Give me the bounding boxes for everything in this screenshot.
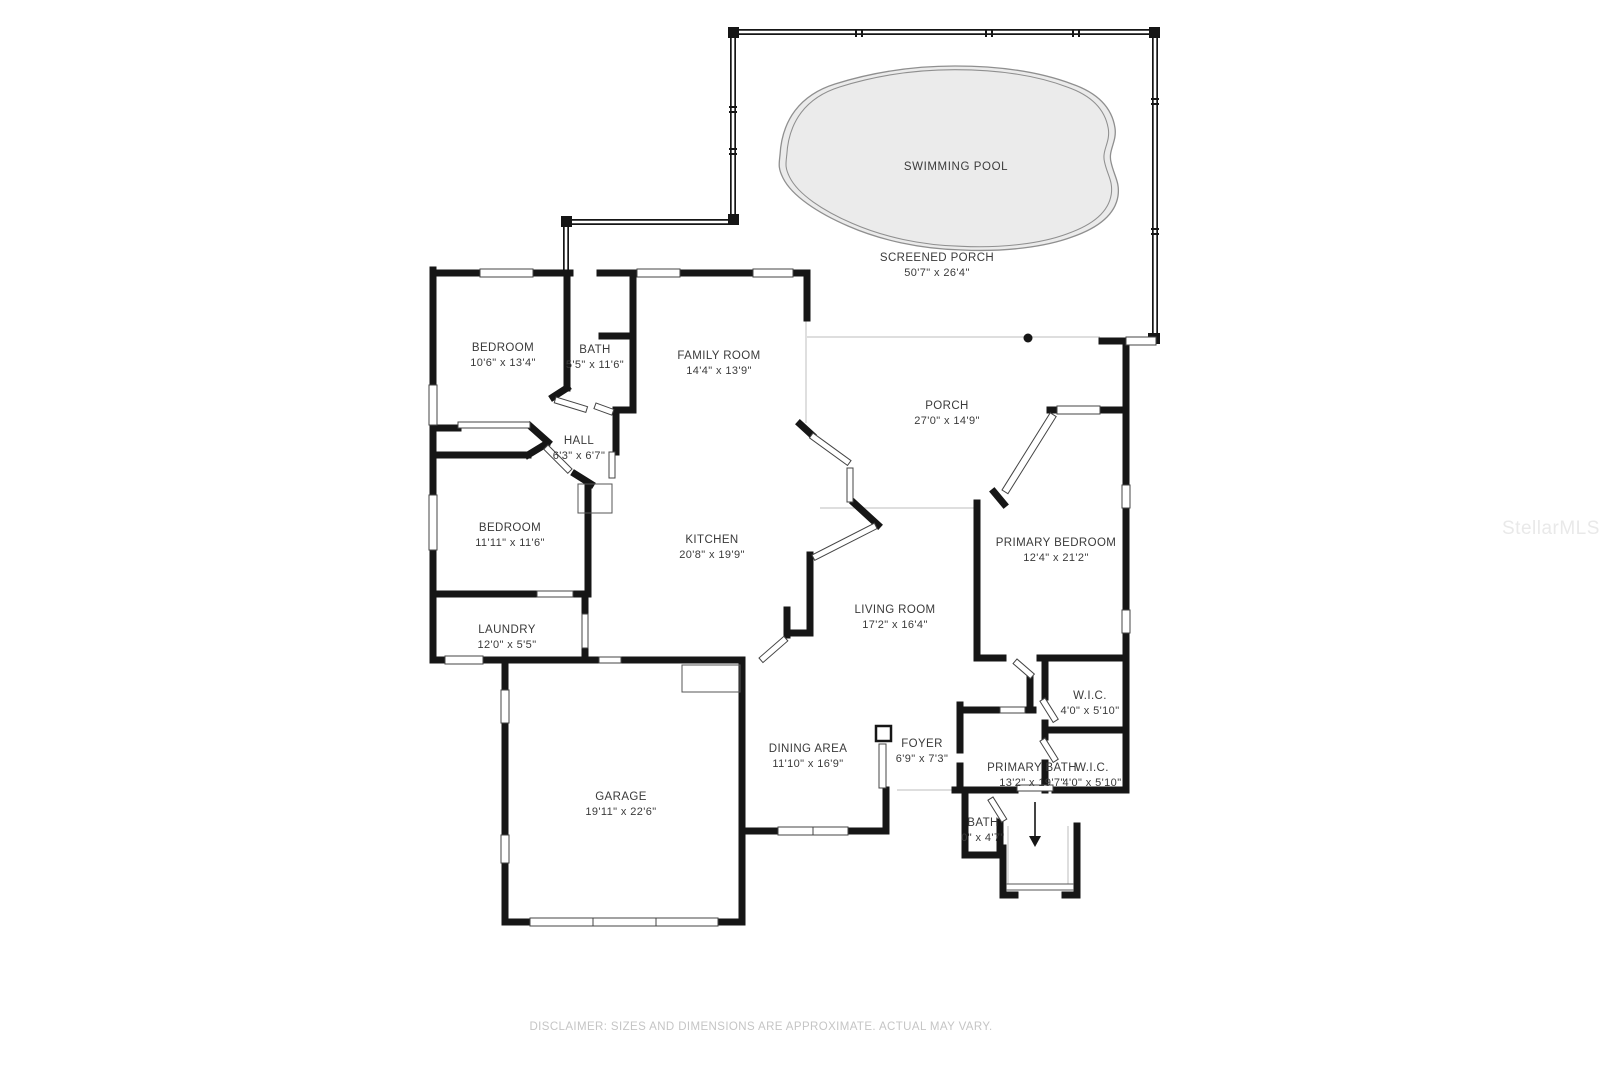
room-label-porch: PORCH 27'0" x 14'9"	[914, 400, 980, 428]
room-dims: 6'3" x 6'7"	[553, 450, 606, 463]
door-openings	[458, 397, 1058, 822]
room-name: BATH	[566, 344, 624, 357]
room-name: KITCHEN	[679, 534, 745, 547]
room-dims: 4'0" x 5'10"	[1060, 705, 1119, 718]
room-label-living-room: LIVING ROOM 17'2" x 16'4"	[854, 604, 935, 632]
room-dims: 10'6" x 13'4"	[470, 357, 536, 370]
room-dims: 12'4" x 21'2"	[996, 552, 1117, 565]
door-pivot-dot	[1024, 334, 1033, 343]
room-name: BEDROOM	[470, 342, 536, 355]
room-dims: 12'0" x 5'5"	[477, 639, 536, 652]
room-name: GARAGE	[585, 791, 656, 804]
room-dims: 0" x 4'7"	[961, 832, 1004, 845]
swimming-pool-shape	[779, 66, 1118, 250]
room-name: W.I.C.	[1062, 762, 1121, 775]
room-name: SWIMMING POOL	[904, 161, 1008, 174]
room-dims: 50'7" x 26'4"	[880, 267, 994, 280]
room-label-bath-1: BATH 5'5" x 11'6"	[566, 344, 624, 372]
floor-plan-drawing	[0, 0, 1600, 1066]
room-name: HALL	[553, 435, 606, 448]
room-label-primary-bedroom: PRIMARY BEDROOM 12'4" x 21'2"	[996, 537, 1117, 565]
floor-plan-page: SWIMMING POOL SCREENED PORCH 50'7" x 26'…	[0, 0, 1600, 1066]
room-dims: 11'11" x 11'6"	[475, 537, 545, 550]
room-dims: 14'4" x 13'9"	[677, 365, 760, 378]
stellar-mls-watermark: StellarMLS	[1502, 518, 1600, 540]
room-dims: 17'2" x 16'4"	[854, 619, 935, 632]
room-name: SCREENED PORCH	[880, 252, 994, 265]
room-label-bedroom-2: BEDROOM 11'11" x 11'6"	[475, 522, 545, 550]
room-name: LIVING ROOM	[854, 604, 935, 617]
room-label-dining-area: DINING AREA 11'10" x 16'9"	[769, 743, 848, 771]
room-name: PORCH	[914, 400, 980, 413]
room-dims: 19'11" x 22'6"	[585, 806, 656, 819]
foyer-column	[876, 726, 891, 741]
entry-porch	[1006, 802, 1074, 890]
garage-door	[530, 918, 718, 926]
room-name: FAMILY ROOM	[677, 350, 760, 363]
room-dims: 11'10" x 16'9"	[769, 758, 848, 771]
disclaimer-text: DISCLAIMER: SIZES AND DIMENSIONS ARE APP…	[529, 1021, 992, 1033]
room-name: PRIMARY BEDROOM	[996, 537, 1117, 550]
room-name: BATH	[961, 817, 1004, 830]
room-label-kitchen: KITCHEN 20'8" x 19'9"	[679, 534, 745, 562]
room-dims: 27'0" x 14'9"	[914, 415, 980, 428]
room-label-laundry: LAUNDRY 12'0" x 5'5"	[477, 624, 536, 652]
room-name: W.I.C.	[1060, 690, 1119, 703]
room-dims: 4'0" x 5'10"	[1062, 777, 1121, 790]
room-name: BEDROOM	[475, 522, 545, 535]
room-dims: 20'8" x 19'9"	[679, 549, 745, 562]
entry-direction-arrow	[1029, 802, 1041, 847]
garage-utility-pad	[682, 665, 740, 692]
room-label-foyer: FOYER 6'9" x 7'3"	[896, 738, 949, 766]
room-label-screened-porch: SCREENED PORCH 50'7" x 26'4"	[880, 252, 994, 280]
room-label-wic-2: W.I.C. 4'0" x 5'10"	[1062, 762, 1121, 790]
entry-steps	[1006, 884, 1074, 890]
room-name: FOYER	[896, 738, 949, 751]
room-dims: 5'5" x 11'6"	[566, 359, 624, 372]
room-label-swimming-pool: SWIMMING POOL	[904, 161, 1008, 174]
room-label-family-room: FAMILY ROOM 14'4" x 13'9"	[677, 350, 760, 378]
room-label-hall: HALL 6'3" x 6'7"	[553, 435, 606, 463]
hall-closet	[578, 484, 612, 513]
room-label-bedroom-1: BEDROOM 10'6" x 13'4"	[470, 342, 536, 370]
room-label-garage: GARAGE 19'11" x 22'6"	[585, 791, 656, 819]
room-label-bath-2: BATH 0" x 4'7"	[961, 817, 1004, 845]
room-label-wic-1: W.I.C. 4'0" x 5'10"	[1060, 690, 1119, 718]
room-name: DINING AREA	[769, 743, 848, 756]
room-name: LAUNDRY	[477, 624, 536, 637]
room-dims: 6'9" x 7'3"	[896, 753, 949, 766]
